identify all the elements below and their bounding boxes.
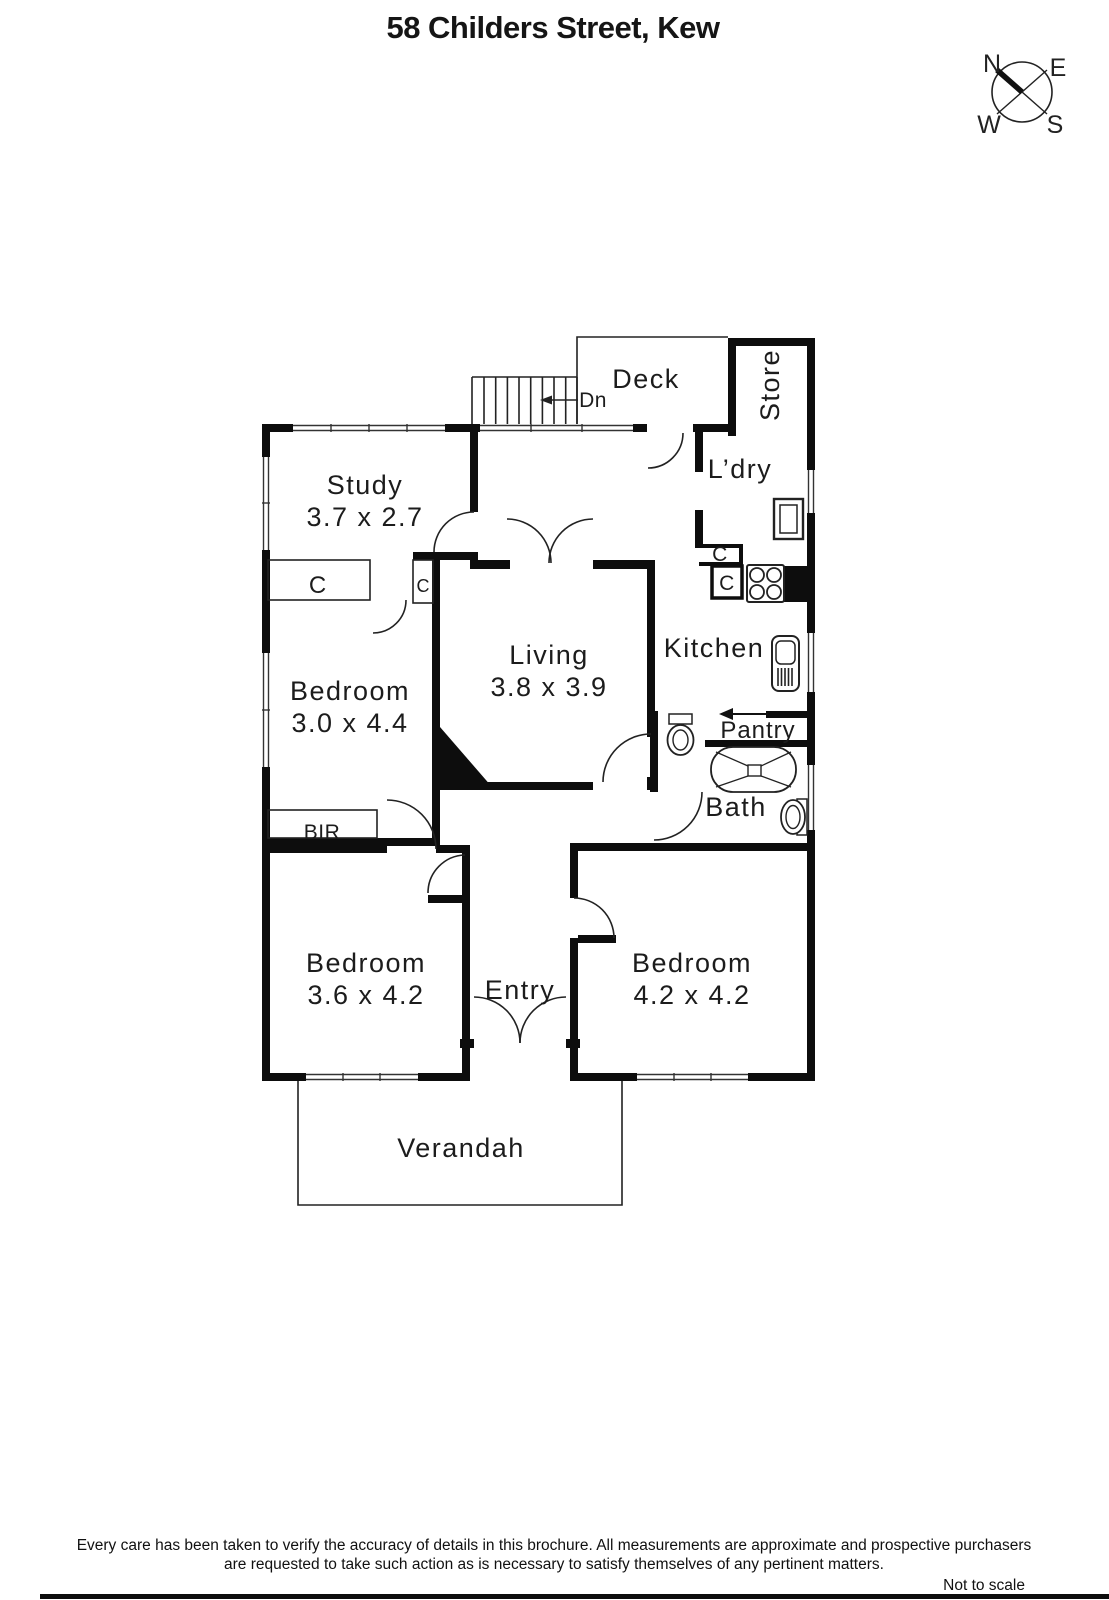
room-label-bath: Bath: [705, 792, 767, 822]
disclaimer-line-1: Every care has been taken to verify the …: [77, 1537, 1032, 1554]
room-label-bedroom-sw: Bedroom: [306, 948, 426, 978]
room-dims-bedroom-se: 4.2 x 4.2: [633, 980, 750, 1010]
closet-label-laundry: C: [712, 543, 728, 566]
floor-plan-page: 58 Childers Street, Kew N E W S Dn: [0, 0, 1109, 1600]
fixtures: [668, 499, 808, 835]
compass-east-label: E: [1050, 54, 1067, 82]
floor-plan-canvas: 58 Childers Street, Kew N E W S Dn: [0, 0, 1109, 1600]
scale-note: Not to scale: [943, 1577, 1025, 1594]
kitchen-sink-icon: [772, 636, 799, 691]
room-label-entry: Entry: [485, 975, 556, 1005]
closet-label-kitchen: C: [719, 572, 735, 595]
room-dims-bedroom-sw: 3.6 x 4.2: [307, 980, 424, 1010]
room-dims-study: 3.7 x 2.7: [306, 502, 423, 532]
closet-label-hall: C: [417, 576, 430, 596]
room-label-laundry: L’dry: [708, 454, 773, 484]
compass-north-label: N: [983, 50, 1001, 78]
laundry-trough-icon: [774, 499, 803, 539]
compass-south-label: S: [1047, 111, 1064, 139]
room-label-store: Store: [755, 349, 785, 421]
stove-icon: [747, 565, 784, 602]
fireplace: [440, 727, 492, 787]
room-label-verandah: Verandah: [397, 1133, 525, 1163]
basin-icon: [781, 799, 807, 835]
built-in-robe-label: BIR: [304, 821, 341, 844]
closet-label-study: C: [309, 572, 327, 599]
room-label-pantry: Pantry: [720, 717, 795, 744]
page-title: 58 Childers Street, Kew: [386, 10, 720, 45]
room-label-deck: Deck: [612, 364, 680, 394]
bathtub-icon: [711, 747, 796, 792]
room-label-kitchen: Kitchen: [664, 633, 765, 663]
disclaimer-line-2: are requested to take such action as is …: [224, 1556, 884, 1573]
room-label-study: Study: [327, 470, 404, 500]
room-label-bedroom-se: Bedroom: [632, 948, 752, 978]
room-dims-bedroom-nw: 3.0 x 4.4: [291, 708, 408, 738]
stairs: [472, 377, 578, 424]
toilet-icon: [668, 714, 694, 755]
room-dims-living: 3.8 x 3.9: [490, 672, 607, 702]
compass-west-label: W: [977, 111, 1001, 139]
room-label-living: Living: [509, 640, 589, 670]
stairs-down-label: Dn: [579, 389, 607, 412]
bottom-border-line: [40, 1594, 1109, 1599]
footer: Every care has been taken to verify the …: [40, 1537, 1109, 1599]
compass-rose-icon: N E W S: [977, 50, 1066, 139]
room-label-bedroom-nw: Bedroom: [290, 676, 410, 706]
